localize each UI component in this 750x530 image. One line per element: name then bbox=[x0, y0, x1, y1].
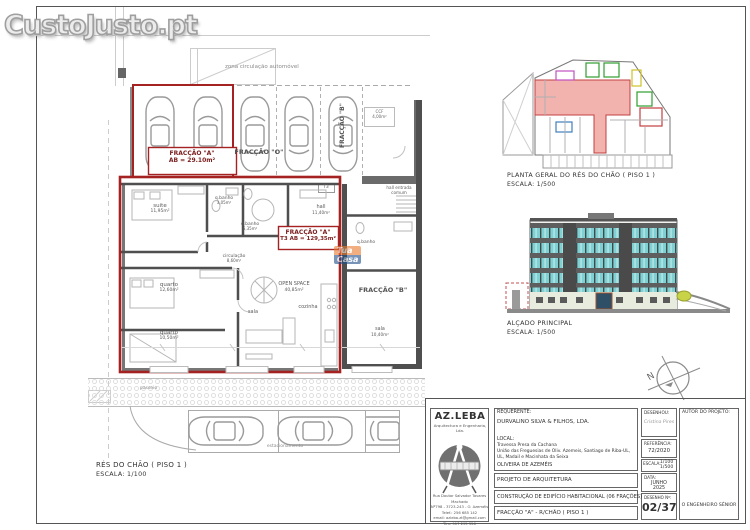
street-cars bbox=[189, 417, 427, 445]
folha-value: FRACÇÃO "A" - R/CHÃO ( PISO 1 ) bbox=[497, 510, 588, 516]
fraction-a-garage-tag: FRACÇÃO "A" AB = 29.10m² bbox=[148, 150, 236, 164]
entrance-door bbox=[596, 293, 612, 309]
room-area: 6,35m² bbox=[232, 227, 268, 232]
car-icon bbox=[241, 97, 269, 171]
room-label-sala-b: sala 10,40m² bbox=[358, 327, 402, 338]
compass-logo-icon bbox=[439, 444, 481, 493]
fraction-b-apartment-label: FRACÇÃO "B" bbox=[348, 287, 418, 295]
estacionamento-label: estacionamento bbox=[245, 444, 325, 449]
dimension-line bbox=[122, 344, 420, 351]
linework-svg bbox=[0, 0, 750, 530]
site-plan-caption-title: PLANTA GERAL DO RÉS DO CHÃO ( PISO 1 ) bbox=[507, 172, 655, 179]
elevation-caption-title: ALÇADO PRINCIPAL bbox=[507, 320, 572, 327]
room-area: 40,85m² bbox=[268, 288, 320, 293]
firm-subtitle: Arquitectura e Engenharia, Lda. bbox=[431, 423, 489, 433]
firm-address-line: email: azleba.zt@gmail.com bbox=[430, 516, 489, 522]
site-plan-caption-scale: ESCALA: 1/500 bbox=[507, 181, 556, 188]
agency-watermark-bottom: Casa bbox=[334, 255, 361, 264]
desenhou-label: DESENHOU: bbox=[644, 410, 669, 415]
data-value-year: 2025 bbox=[642, 486, 676, 491]
room-area: 10,50m² bbox=[148, 336, 190, 341]
desenho-num-label: DESENHO Nº: bbox=[644, 495, 671, 500]
local-line: OLIVEIRA DE AZEMÉIS bbox=[497, 462, 630, 469]
ccf-line2: 4,00m² bbox=[364, 115, 395, 120]
car-icon bbox=[353, 417, 427, 445]
elevation-caption-scale: ESCALA: 1/500 bbox=[507, 329, 556, 336]
drawing-sheet: CustoJusto.pt Tua Casa zona circulação a… bbox=[0, 0, 750, 530]
elevation bbox=[506, 213, 730, 313]
requerente-value: DURVALINO SILVA & FILHOS, LDA. bbox=[497, 419, 589, 425]
referencia-value: 72/2020 bbox=[642, 448, 676, 454]
site-plan bbox=[503, 60, 672, 168]
room-area: 3,05m² bbox=[206, 201, 242, 206]
zone-label: zona circulação automóvel bbox=[225, 64, 299, 70]
t3-tag: T3 bbox=[318, 185, 334, 190]
fraction-o-label: FRACÇÃO "O" bbox=[228, 149, 290, 157]
room-label-qbanho2: q.banho 6,35m² bbox=[232, 222, 268, 232]
room-label-qbanho-b: q.banho bbox=[348, 240, 384, 245]
ccf-label: CCF 4,00m² bbox=[364, 110, 395, 119]
common-hall-label: hall entrada comum bbox=[378, 186, 420, 196]
room-label-cozinha: cozinha bbox=[290, 305, 326, 311]
fraction-a-apartment-area: T3 AB = 129,35m² bbox=[278, 236, 338, 242]
room-name: cozinha bbox=[290, 305, 326, 311]
data-value-month: JUNHO bbox=[642, 481, 676, 486]
agency-watermark-top: Tua bbox=[334, 246, 361, 255]
room-name: q.banho bbox=[348, 240, 384, 245]
escala-label: ESCALA: bbox=[643, 461, 661, 466]
room-label-quarto1: quarto 12,60m² bbox=[148, 282, 190, 294]
firm-address-line: Nº798 - 3723-243 - O. Azeméis bbox=[430, 505, 489, 511]
plan-caption-scale: ESCALA: 1/100 bbox=[96, 471, 147, 478]
room-area: 8,60m² bbox=[212, 259, 256, 264]
fraction-a-garage-title: FRACÇÃO "A" bbox=[148, 150, 236, 157]
car-icon bbox=[189, 417, 263, 445]
agency-watermark: Tua Casa bbox=[334, 246, 361, 264]
room-label-suite: suite 11,95m² bbox=[138, 203, 182, 215]
landscaping-bush bbox=[677, 291, 691, 301]
autor-label: AUTOR DO PROJETO: bbox=[682, 410, 730, 415]
passeio-label: passeio bbox=[140, 386, 157, 391]
firm-address: Rua Doutor Salvador Tavares Machado Nº79… bbox=[430, 494, 489, 527]
data-label: DATA: bbox=[644, 475, 656, 480]
firm-address-line: Rua Doutor Salvador Tavares Machado bbox=[430, 494, 489, 505]
desenho-num-value: 02/37 bbox=[642, 501, 676, 514]
room-name: sala bbox=[238, 310, 268, 316]
fraction-b-garage-label: FRACÇÃO "B" bbox=[339, 103, 346, 148]
room-label-quarto2: quarto 10,50m² bbox=[148, 330, 190, 342]
fraction-a-garage-area: AB = 29.10m² bbox=[148, 157, 236, 164]
room-label-circulacao: circulação 8,60m² bbox=[212, 254, 256, 264]
room-label-qbanho1: q.banho 3,05m² bbox=[206, 196, 242, 206]
local-line: União das Freguesias de Oliv. Azemeis, S… bbox=[497, 449, 630, 455]
escala-value-2: 1/500 bbox=[660, 465, 673, 470]
car-icon bbox=[285, 97, 313, 171]
firm-address-line: Tlm: 917 295 556 bbox=[430, 522, 489, 528]
boundary-marker bbox=[118, 68, 126, 78]
room-area: 12,60m² bbox=[148, 288, 190, 293]
local-label: LOCAL: bbox=[497, 437, 514, 442]
desenhou-value: Cristina Pires bbox=[642, 420, 676, 425]
projeto-value: PROJETO DE ARQUITETURA bbox=[497, 477, 572, 483]
requerente-label: REQUERENTE: bbox=[497, 410, 531, 415]
local-value: Travessa Presa da Cachana União das Freg… bbox=[497, 443, 630, 469]
exterior-area bbox=[88, 378, 427, 453]
firm-name: AZ.LEBA bbox=[431, 411, 489, 422]
car-icon bbox=[278, 417, 352, 445]
construcao-value: CONSTRUÇÃO DE EDIFÍCIO HABITACIONAL (06 … bbox=[497, 494, 642, 500]
common-hall-line2: comum bbox=[378, 191, 420, 196]
local-line: UL, Madail e Macinhata da Seixa bbox=[497, 455, 630, 461]
autor-assinatura: O ENGENHEIRO SÉNIOR bbox=[681, 503, 737, 509]
room-area: 11,95m² bbox=[138, 209, 182, 214]
room-label-hall: hall 11,40m² bbox=[303, 205, 339, 216]
room-area: 10,40m² bbox=[358, 333, 402, 338]
plan-caption-title: RÉS DO CHÃO ( PISO 1 ) bbox=[96, 461, 187, 469]
room-label-sala: sala bbox=[238, 310, 268, 316]
room-label-openspace: OPEN SPACE 40,85m² bbox=[268, 282, 320, 293]
fraction-a-apartment-tag: FRACÇÃO "A" T3 AB = 129,35m² bbox=[278, 229, 338, 243]
common-stairs bbox=[396, 196, 416, 212]
custojusto-logo: CustoJusto.pt bbox=[4, 10, 197, 41]
escala-value-1: 1/100 bbox=[660, 460, 673, 465]
referencia-label: REFERÊNCIA: bbox=[644, 441, 672, 446]
room-area: 11,40m² bbox=[303, 211, 339, 216]
